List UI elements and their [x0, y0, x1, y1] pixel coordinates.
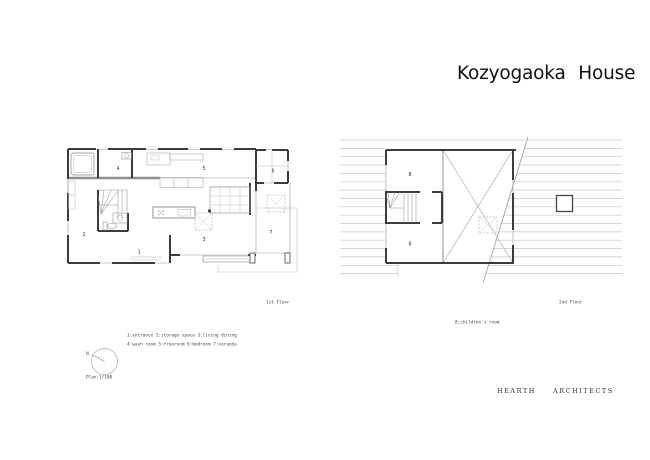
tatami-grid: [208, 187, 250, 213]
room-label-8-upper: 8: [408, 172, 411, 178]
room-label-4: 4: [116, 166, 119, 172]
bedroom-closet: [256, 150, 288, 183]
void-cross-lines: [443, 150, 513, 263]
room-label-7: 7: [269, 230, 272, 236]
roof-deck-lines: [340, 140, 622, 274]
room-label-6: 6: [271, 169, 274, 175]
north-indicator: [89, 346, 121, 378]
exterior-step: [203, 253, 290, 263]
bathtub-inner: [74, 156, 92, 173]
plan-scale: Plan:1/100: [86, 375, 112, 380]
project-title: Kozyogaoka House: [457, 63, 635, 84]
wall-underlay: [386, 150, 513, 263]
caption-first-floor: 1st Floor: [266, 300, 290, 305]
first-floor-plan: 1 2 3 4 5 6 7: [60, 135, 305, 283]
kitchen-counter: [153, 207, 195, 218]
room-label-3: 3: [202, 237, 205, 243]
washbasin: [113, 213, 127, 223]
bathtub: [71, 153, 94, 175]
room-label-2: 2: [82, 232, 85, 238]
second-floor-plan: 8 8: [340, 135, 622, 285]
roof-edge-line: [483, 137, 528, 283]
kitchen-cabinets: [147, 153, 203, 188]
void-box: [479, 217, 497, 233]
firm-name: HEARTH ARCHITECTS: [497, 387, 614, 395]
storage-shelves: [69, 181, 76, 209]
void-box-living: [195, 213, 212, 230]
north-label: N: [86, 351, 89, 356]
room-label-8-lower: 8: [408, 242, 411, 248]
washing-machine: [122, 153, 132, 160]
walls: [386, 150, 516, 263]
drawing-sheet: Kozyogaoka House: [0, 0, 650, 460]
toilet: [103, 222, 117, 230]
staircase: [98, 190, 122, 218]
skylight: [557, 196, 573, 212]
room-label-1: 1: [137, 250, 140, 256]
staircase: [386, 192, 416, 223]
entrance-step-lines: [130, 257, 162, 260]
room-label-5: 5: [202, 166, 205, 172]
void-box-veranda: [267, 195, 285, 212]
legend-line-2: 4:wash room 5:freeroom 6:bedroom 7:veran…: [127, 342, 237, 347]
legend-line-1: 1:entrance 2:storage space 3:living dini…: [127, 333, 237, 338]
legend-children-room: 8:children's room: [455, 320, 499, 325]
walls: [68, 149, 288, 263]
caption-second-floor: 2nd Floor: [559, 300, 583, 305]
north-needle-icon: [92, 355, 105, 362]
